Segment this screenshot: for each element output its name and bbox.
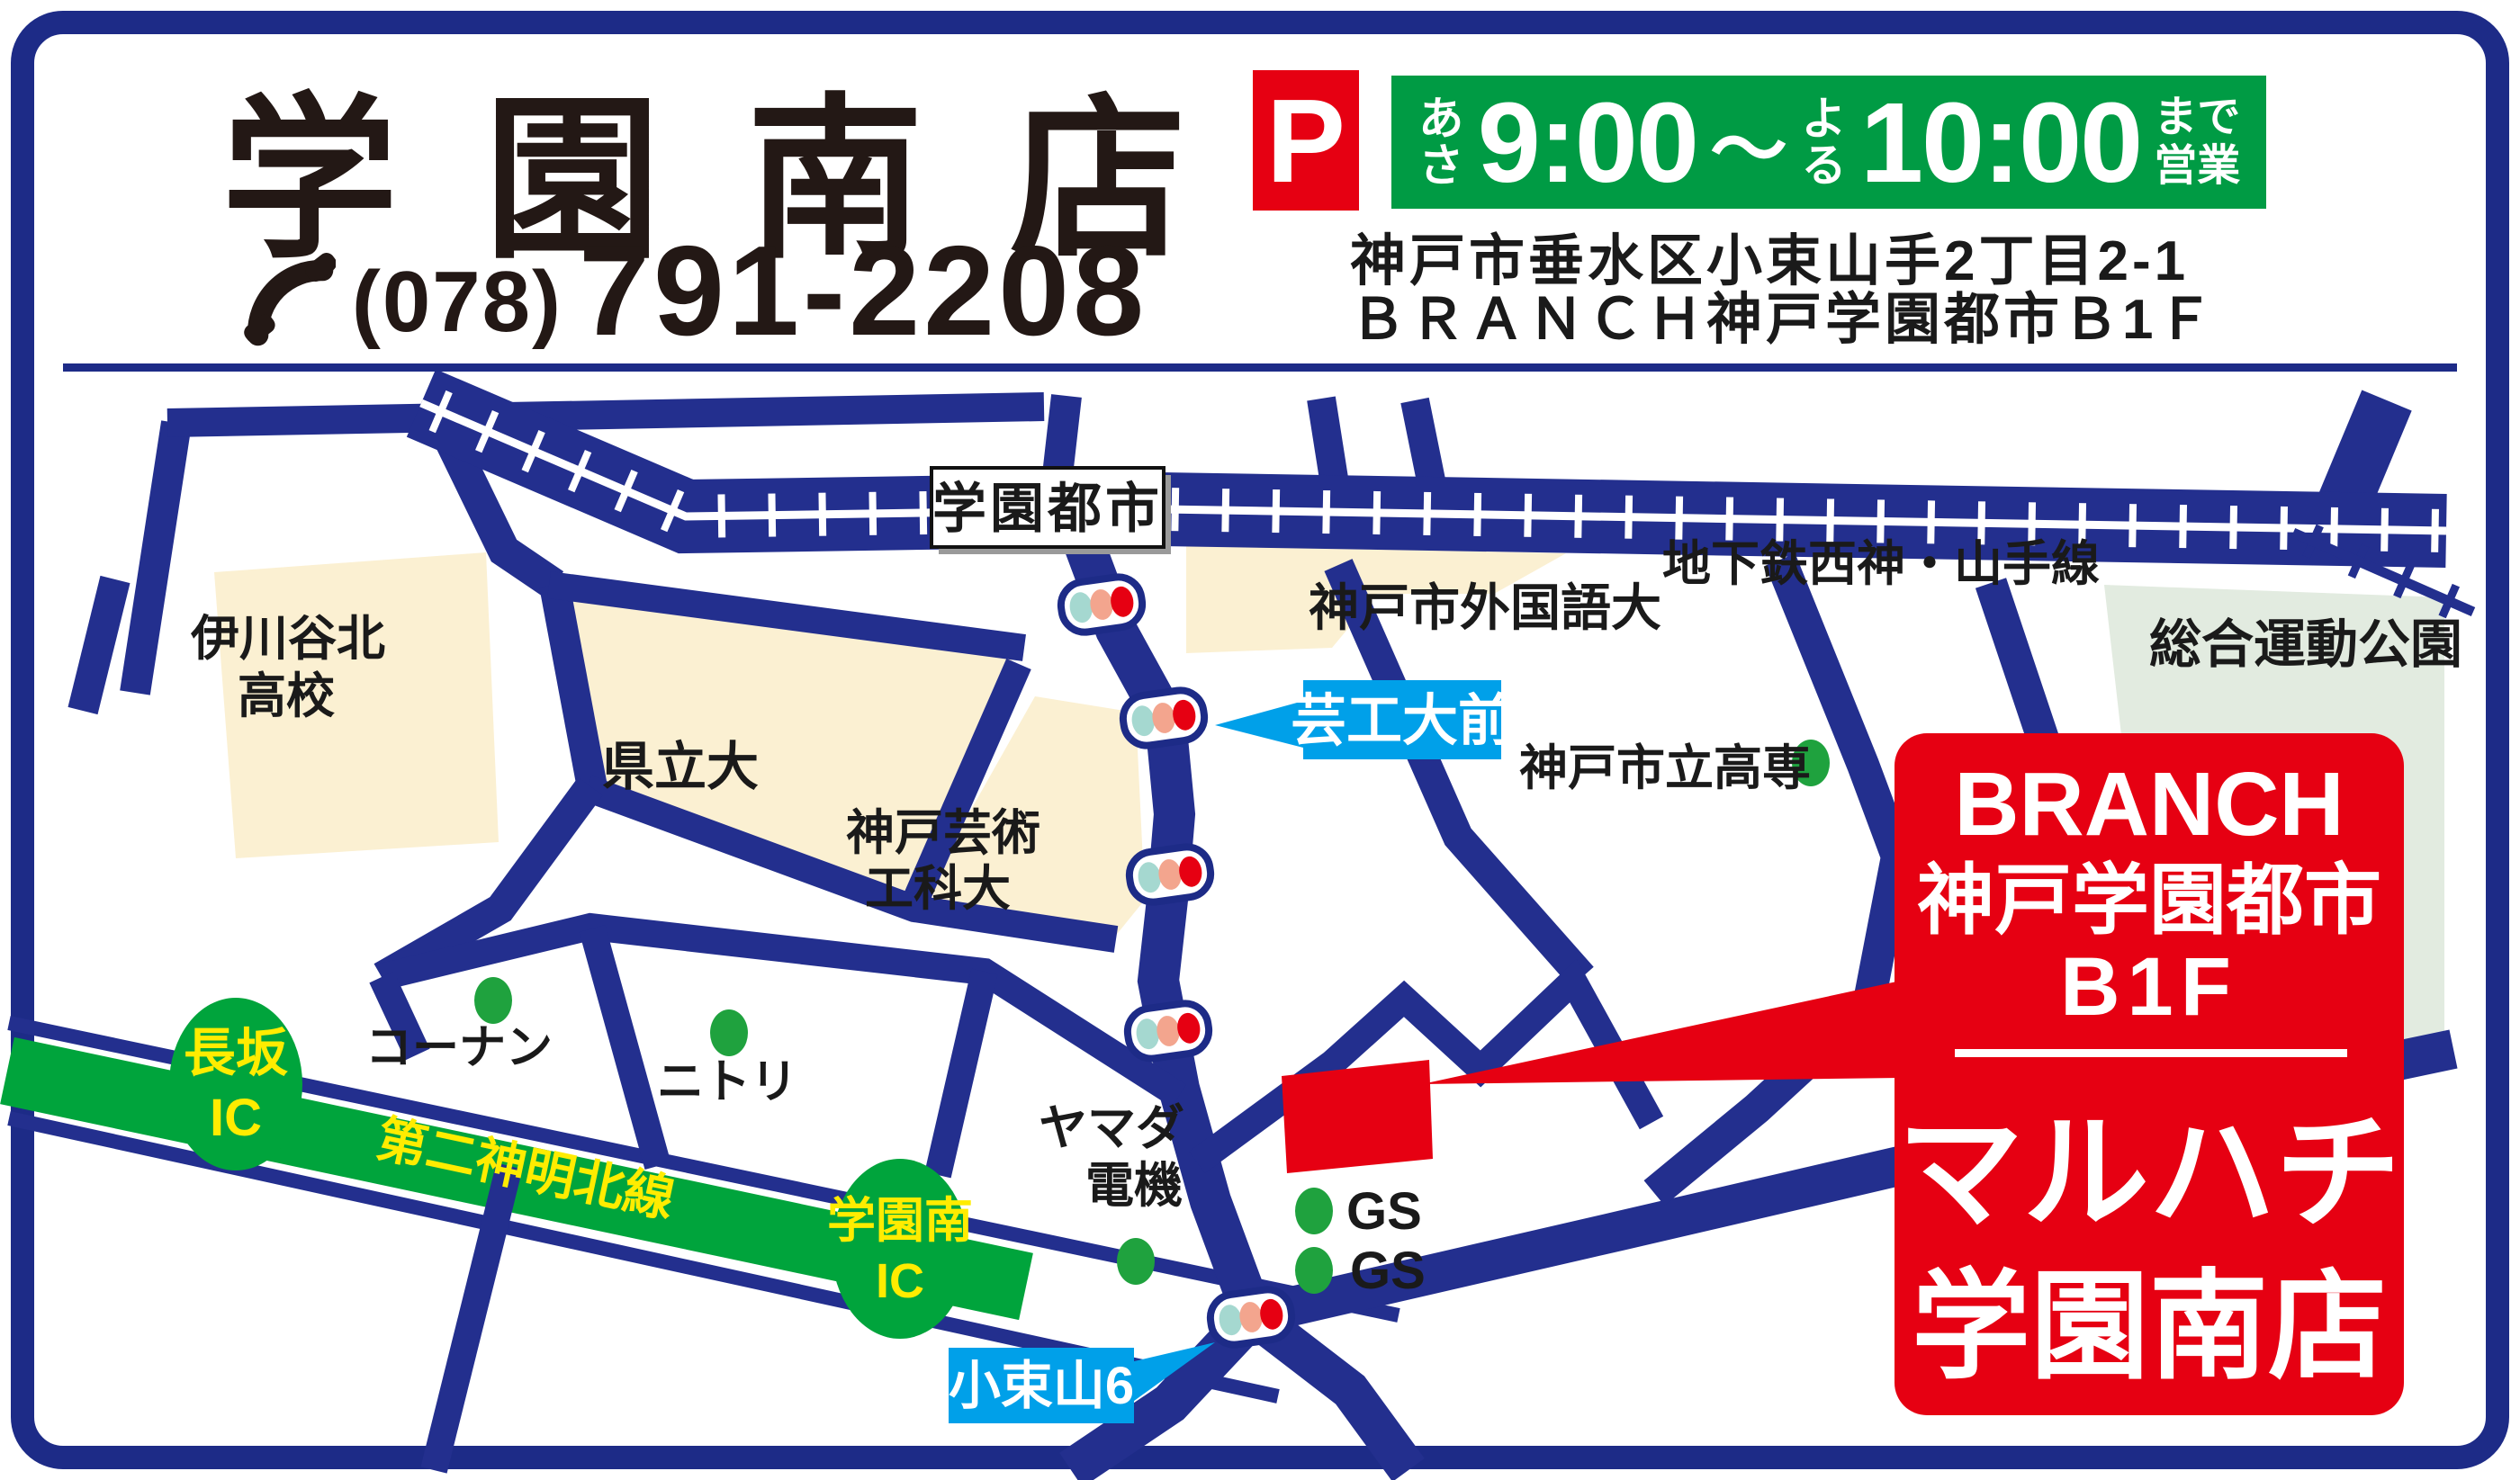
road-nitori-right	[938, 972, 985, 1175]
road-station-up	[1057, 396, 1066, 475]
store-address: 神戸市垂水区小束山手2丁目2-1 ＢＲＡＮＣＨ神戸学園都市Ｂ1Ｆ	[1350, 232, 2385, 349]
label-yamada-2: 電機	[1085, 1159, 1183, 1213]
phone-number: 791-2208	[579, 218, 1147, 365]
phone-icon	[238, 251, 336, 348]
traffic-light-4	[1125, 1000, 1212, 1062]
label-kosen: 神戸市立高専	[1519, 741, 1811, 795]
label-yamada-1: ヤマダ	[1039, 1101, 1184, 1155]
hours-tilde: 〜	[1710, 86, 1787, 199]
road-up-2	[1415, 400, 1431, 480]
label-kenritsudai: 県立大	[602, 738, 759, 796]
hours-close-time: 10:00	[1860, 77, 2141, 208]
konan-dot	[474, 977, 512, 1024]
kozukayama-sign-label: 小束山6	[949, 1357, 1134, 1415]
road-left-border	[83, 579, 115, 711]
label-gs1: GS	[1346, 1182, 1422, 1241]
traffic-light-5	[1208, 1287, 1295, 1348]
road-corner-up	[2344, 400, 2387, 504]
store-leader-wedge	[1422, 981, 1901, 1084]
label-geiko-1: 神戸芸術	[846, 806, 1040, 860]
yamada-dot	[1117, 1238, 1155, 1285]
hours-until-line2: 営業	[2154, 142, 2240, 191]
label-ikawadani-2: 高校	[238, 669, 335, 723]
station-label: 学園都市	[932, 479, 1163, 539]
store-box-line2: 神戸学園都市	[1917, 857, 2381, 944]
label-ikawadani-1: 伊川谷北	[190, 612, 385, 666]
traffic-light-2	[1120, 687, 1208, 749]
store-box-line1: BRANCH	[1954, 754, 2344, 855]
label-gakuen-minami-ic-1: 学園南	[827, 1194, 973, 1248]
label-sports-park: 総合運動公園	[2149, 615, 2462, 674]
road-topleft-diagonal	[135, 423, 176, 693]
label-nagasaka-ic-2: IC	[210, 1089, 262, 1147]
address-line-1: 神戸市垂水区小束山手2丁目2-1	[1350, 232, 2385, 291]
hours-evening-label: よる	[1800, 95, 1848, 189]
store-box-divider	[1955, 1049, 2347, 1057]
road-top	[167, 407, 1044, 423]
label-konan: コーナン	[365, 1022, 553, 1074]
gs1-dot	[1295, 1188, 1333, 1234]
road-kosen-east	[1654, 560, 1897, 1193]
hours-until-label: まで 営業	[2154, 94, 2240, 191]
road-up-1	[1321, 399, 1334, 479]
business-hours-banner: あさ 9:00 〜 よる 10:00 まで 営業	[1391, 76, 2266, 209]
phone-row: (078) 791-2208	[175, 218, 1210, 365]
label-gs2: GS	[1350, 1242, 1426, 1300]
label-gakuen-minami-ic-2: IC	[876, 1254, 924, 1308]
store-box-branch: 学園南店	[1912, 1260, 2387, 1393]
label-gaikokugo: 神戸市外国語大	[1309, 579, 1661, 636]
label-nagasaka-ic-1: 長坂	[184, 1024, 288, 1082]
header-separator	[63, 363, 2457, 372]
store-box-line3: B1F	[2060, 941, 2238, 1033]
store-box-brand: マルハチ	[1897, 1102, 2401, 1243]
store-marker	[1282, 1060, 1433, 1173]
label-nitori: ニトリ	[657, 1056, 797, 1108]
gs2-dot	[1295, 1247, 1333, 1294]
hours-morning-label: あさ	[1417, 95, 1465, 189]
label-geiko-2: 工科大	[865, 862, 1011, 916]
ic-gakuen-minami	[832, 1159, 968, 1339]
traffic-light-3	[1127, 844, 1214, 905]
traffic-light-1	[1058, 574, 1146, 635]
hours-until-line1: まで	[2154, 94, 2240, 142]
nitori-dot	[710, 1009, 748, 1056]
address-line-2: ＢＲＡＮＣＨ神戸学園都市Ｂ1Ｆ	[1350, 291, 2385, 349]
phone-area-code: (078)	[352, 253, 562, 352]
geikodai-sign-label: 芸工大前	[1291, 690, 1514, 752]
hours-open-time: 9:00	[1478, 77, 1697, 208]
road-between-blocks	[592, 928, 658, 1166]
label-rail-line: 地下鉄西神・山手線	[1662, 537, 2100, 591]
parking-icon: P	[1253, 70, 1359, 211]
